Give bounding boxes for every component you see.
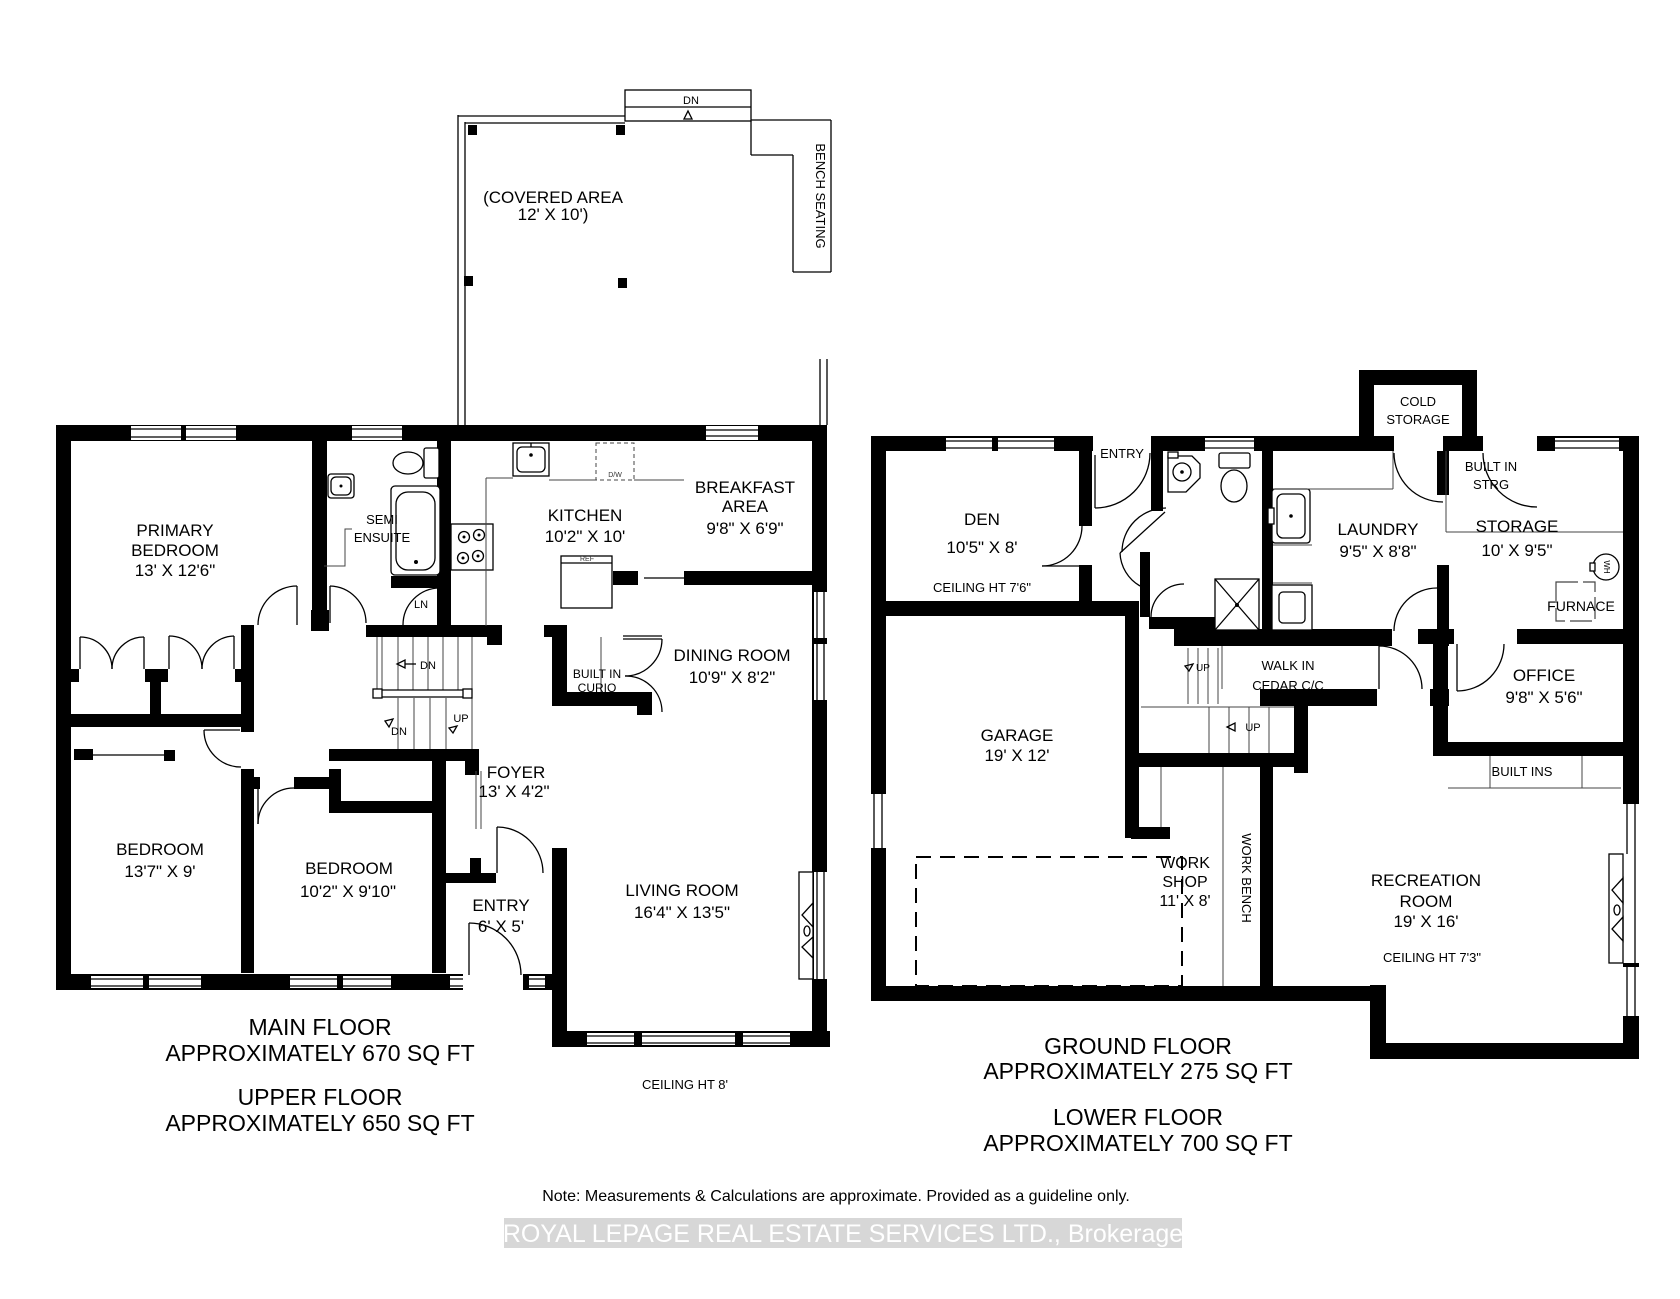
svg-text:10'2" X 9'10": 10'2" X 9'10" xyxy=(300,882,396,901)
svg-text:GARAGE: GARAGE xyxy=(981,726,1054,745)
svg-text:UP: UP xyxy=(1245,722,1260,734)
svg-text:UP: UP xyxy=(453,713,468,725)
svg-text:19' X 12': 19' X 12' xyxy=(984,746,1049,765)
svg-text:APPROXIMATELY 650 SQ FT: APPROXIMATELY 650 SQ FT xyxy=(165,1110,474,1136)
svg-text:19' X 16': 19' X 16' xyxy=(1393,912,1458,931)
svg-text:STRG: STRG xyxy=(1473,477,1509,492)
svg-text:LOWER FLOOR: LOWER FLOOR xyxy=(1053,1104,1223,1130)
svg-text:9'8" X 6'9": 9'8" X 6'9" xyxy=(706,519,783,538)
svg-text:MAIN FLOOR: MAIN FLOOR xyxy=(248,1014,391,1040)
svg-text:BUILT IN: BUILT IN xyxy=(573,667,621,681)
svg-text:DINING ROOM: DINING ROOM xyxy=(673,646,790,665)
svg-text:PRIMARY: PRIMARY xyxy=(136,521,213,540)
svg-text:10' X 9'5": 10' X 9'5" xyxy=(1481,541,1552,560)
svg-text:REF: REF xyxy=(580,556,594,563)
svg-text:SHOP: SHOP xyxy=(1162,874,1207,891)
svg-text:SEMI: SEMI xyxy=(366,512,398,527)
svg-text:WALK IN: WALK IN xyxy=(1262,658,1315,673)
svg-text:10'5" X 8': 10'5" X 8' xyxy=(946,538,1017,557)
svg-text:UPPER FLOOR: UPPER FLOOR xyxy=(238,1084,403,1110)
svg-text:CEILING HT 8': CEILING HT 8' xyxy=(642,1077,728,1092)
svg-text:CEILING HT 7'6": CEILING HT 7'6" xyxy=(933,580,1031,595)
svg-text:DN: DN xyxy=(391,726,407,738)
svg-text:APPROXIMATELY 670 SQ FT: APPROXIMATELY 670 SQ FT xyxy=(165,1040,474,1066)
svg-text:ENTRY: ENTRY xyxy=(1100,446,1144,461)
svg-text:LIVING ROOM: LIVING ROOM xyxy=(625,881,738,900)
svg-text:BEDROOM: BEDROOM xyxy=(116,840,204,859)
svg-text:Note: Measurements & Calculati: Note: Measurements & Calculations are ap… xyxy=(542,1188,1130,1205)
svg-text:BREAKFAST: BREAKFAST xyxy=(695,478,795,497)
svg-text:11' X 8': 11' X 8' xyxy=(1159,893,1210,910)
svg-text:WORK: WORK xyxy=(1160,855,1210,872)
svg-text:GROUND FLOOR: GROUND FLOOR xyxy=(1044,1033,1232,1059)
svg-text:STORAGE: STORAGE xyxy=(1476,517,1559,536)
svg-text:AREA: AREA xyxy=(722,497,769,516)
svg-text:CURIO: CURIO xyxy=(578,681,617,695)
svg-text:KITCHEN: KITCHEN xyxy=(548,506,623,525)
svg-text:DN: DN xyxy=(683,95,699,107)
svg-text:ENSUITE: ENSUITE xyxy=(354,530,411,545)
svg-text:BEDROOM: BEDROOM xyxy=(305,859,393,878)
svg-text:DN: DN xyxy=(420,660,436,672)
svg-text:10'2" X 10': 10'2" X 10' xyxy=(545,527,626,546)
svg-text:13' X 12'6": 13' X 12'6" xyxy=(135,561,216,580)
svg-text:BEDROOM: BEDROOM xyxy=(131,541,219,560)
svg-text:STORAGE: STORAGE xyxy=(1386,412,1450,427)
svg-text:LAUNDRY: LAUNDRY xyxy=(1338,520,1419,539)
svg-text:DEN: DEN xyxy=(964,510,1000,529)
svg-text:BUILT IN: BUILT IN xyxy=(1465,459,1517,474)
svg-text:D/W: D/W xyxy=(608,472,622,479)
svg-text:13'7" X 9': 13'7" X 9' xyxy=(124,862,195,881)
svg-text:12' X 10'): 12' X 10') xyxy=(518,205,589,224)
svg-text:BUILT INS: BUILT INS xyxy=(1492,764,1553,779)
svg-text:ROOM: ROOM xyxy=(1400,892,1453,911)
svg-text:BENCH SEATING: BENCH SEATING xyxy=(813,143,828,248)
svg-text:16'4" X 13'5": 16'4" X 13'5" xyxy=(634,903,730,922)
svg-text:9'8" X 5'6": 9'8" X 5'6" xyxy=(1505,688,1582,707)
svg-text:ROYAL LEPAGE REAL ESTATE SERVI: ROYAL LEPAGE REAL ESTATE SERVICES LTD., … xyxy=(503,1220,1183,1248)
svg-text:COLD: COLD xyxy=(1400,394,1436,409)
svg-text:UP: UP xyxy=(1196,663,1210,674)
svg-text:OFFICE: OFFICE xyxy=(1513,666,1575,685)
svg-text:FOYER: FOYER xyxy=(487,763,546,782)
svg-text:13' X 4'2": 13' X 4'2" xyxy=(478,782,549,801)
svg-text:APPROXIMATELY 700 SQ FT: APPROXIMATELY 700 SQ FT xyxy=(983,1130,1292,1156)
svg-text:10'9" X 8'2": 10'9" X 8'2" xyxy=(689,668,776,687)
svg-text:9'5" X 8'8": 9'5" X 8'8" xyxy=(1339,542,1416,561)
svg-text:CEDAR C/C: CEDAR C/C xyxy=(1252,678,1324,693)
svg-text:ENTRY: ENTRY xyxy=(472,896,529,915)
svg-text:FURNACE: FURNACE xyxy=(1547,598,1615,614)
svg-text:LN: LN xyxy=(414,599,428,611)
svg-text:APPROXIMATELY 275 SQ FT: APPROXIMATELY 275 SQ FT xyxy=(983,1058,1292,1084)
svg-text:WORK BENCH: WORK BENCH xyxy=(1239,833,1254,923)
svg-text:CEILING HT 7'3": CEILING HT 7'3" xyxy=(1383,950,1481,965)
svg-text:WH: WH xyxy=(1602,560,1611,574)
svg-text:RECREATION: RECREATION xyxy=(1371,871,1481,890)
svg-text:6' X 5': 6' X 5' xyxy=(478,917,524,936)
